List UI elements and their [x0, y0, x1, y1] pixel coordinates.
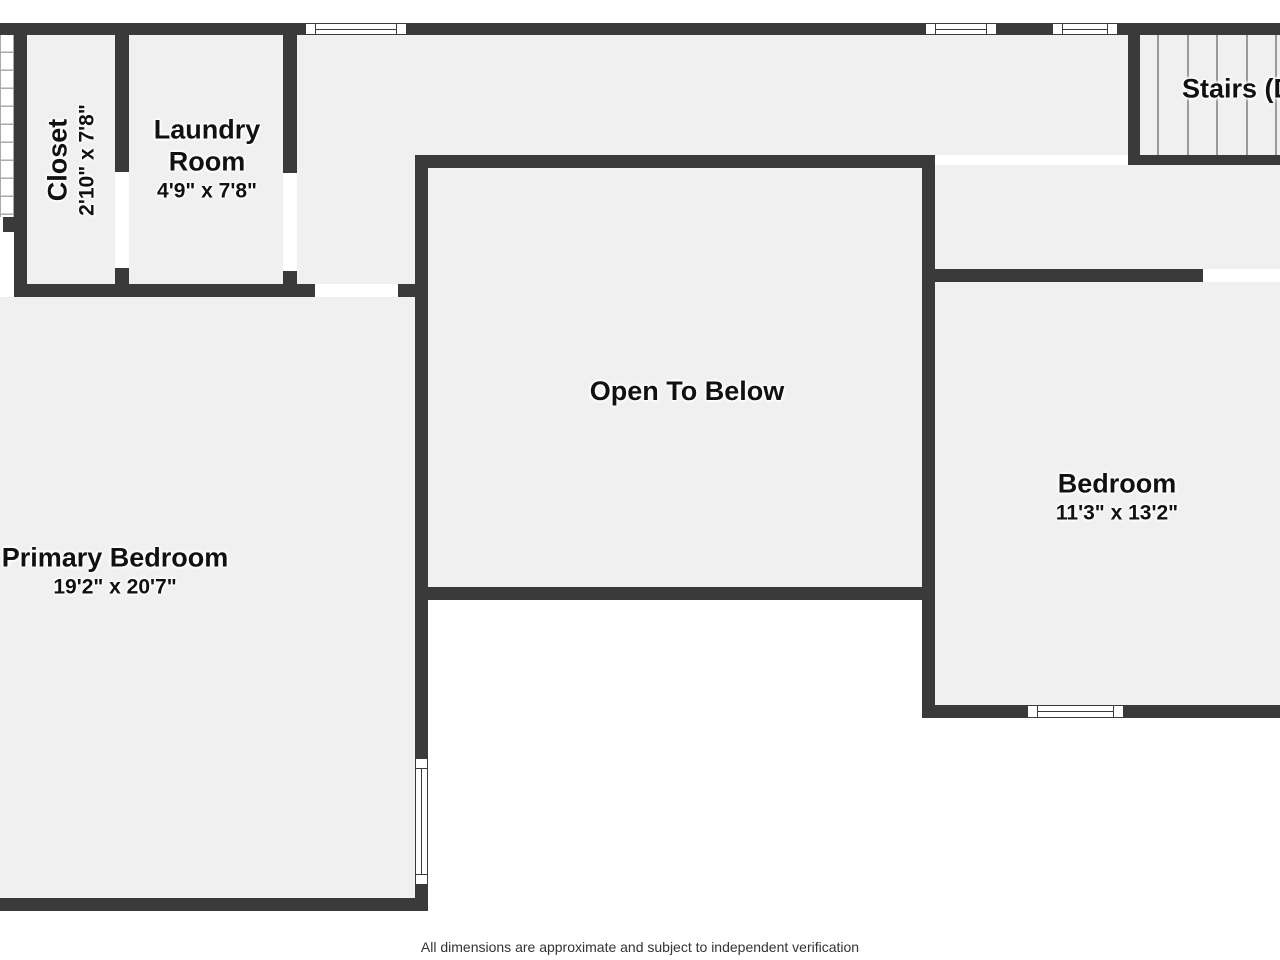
open-to-below-name: Open To Below — [590, 375, 785, 407]
closet-dimensions: 2'10" x 7'8" — [74, 104, 101, 216]
wall-primary-bedroom-top-left — [14, 284, 315, 297]
room-label-open-to-below: Open To Below — [590, 375, 785, 407]
window-hallway-top — [305, 23, 407, 35]
bedroom-name: Bedroom — [1056, 468, 1178, 500]
window-primary-bedroom-right — [415, 758, 428, 885]
wall-open-to-below-top — [415, 155, 935, 168]
stairs-cutoff-hatch — [0, 35, 14, 217]
wall-laundry-right-upper — [283, 35, 297, 173]
primary-bedroom-dimensions: 19'2" x 20'7" — [2, 574, 229, 601]
door-opening-primary-bedroom — [315, 284, 398, 297]
wall-stair-stub — [3, 217, 27, 232]
window-landing-top-2 — [1052, 23, 1118, 35]
laundry-dimensions: 4'9" x 7'8" — [132, 178, 282, 205]
wall-closet-left — [14, 35, 27, 297]
closet-name: Closet — [42, 104, 74, 216]
room-label-closet: Closet 2'10" x 7'8" — [42, 104, 101, 216]
door-opening-closet — [115, 172, 129, 268]
wall-stairs-left — [1128, 35, 1140, 155]
wall-open-to-below-left — [415, 155, 428, 758]
floor-plan: Closet 2'10" x 7'8" Laundry Room 4'9" x … — [0, 0, 1280, 960]
room-label-primary-bedroom: Primary Bedroom 19'2" x 20'7" — [2, 542, 229, 601]
primary-bedroom-name: Primary Bedroom — [2, 542, 229, 574]
bedroom-dimensions: 11'3" x 13'2" — [1056, 500, 1178, 527]
laundry-name: Laundry Room — [132, 114, 282, 178]
floor-hallway-top — [297, 35, 1128, 155]
wall-bedroom-top — [935, 269, 1203, 282]
wall-primary-bedroom-bottom — [0, 898, 428, 911]
floor-hallway-column — [297, 35, 415, 284]
stair-tread-line — [1157, 35, 1159, 155]
room-label-laundry: Laundry Room 4'9" x 7'8" — [132, 114, 282, 205]
room-label-stairs: Stairs (Down) — [1182, 74, 1280, 105]
floor-landing — [935, 165, 1280, 269]
wall-bedroom-left — [922, 155, 935, 718]
door-opening-laundry — [283, 173, 297, 271]
wall-open-to-below-bottom — [415, 587, 935, 600]
wall-stairs-bottom — [1128, 155, 1280, 165]
window-landing-top-1 — [925, 23, 997, 35]
footer-disclaimer: All dimensions are approximate and subje… — [421, 939, 859, 955]
wall-closet-laundry-divider-upper — [115, 35, 129, 172]
door-opening-bedroom — [1203, 269, 1280, 282]
room-label-bedroom: Bedroom 11'3" x 13'2" — [1056, 468, 1178, 527]
window-bedroom-bottom — [1027, 705, 1124, 718]
